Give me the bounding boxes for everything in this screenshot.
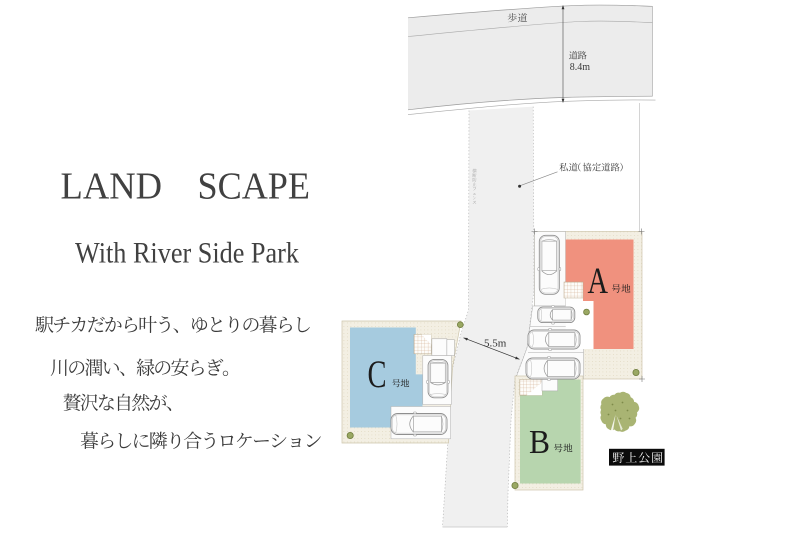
svg-text:SCAPE: SCAPE [198, 166, 311, 208]
svg-text:5.5m: 5.5m [484, 338, 507, 350]
svg-text:With River Side Park: With River Side Park [75, 236, 299, 269]
svg-text:B: B [529, 424, 550, 461]
svg-text:C: C [368, 353, 387, 396]
svg-text:A: A [588, 261, 609, 302]
svg-text:LAND: LAND [61, 166, 163, 208]
svg-text:8.4m: 8.4m [570, 62, 591, 73]
